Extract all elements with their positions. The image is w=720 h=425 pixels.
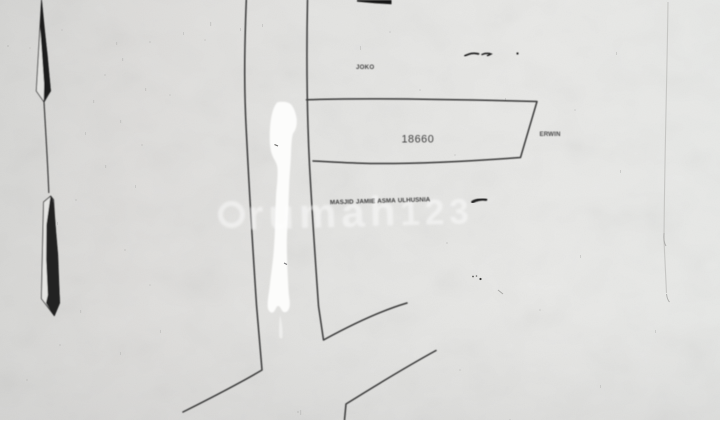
svg-text:ERWIN: ERWIN	[540, 131, 561, 138]
svg-text:JOKO: JOKO	[356, 64, 374, 71]
svg-text:rumah123: rumah123	[246, 185, 474, 238]
svg-text:18660: 18660	[402, 133, 435, 145]
